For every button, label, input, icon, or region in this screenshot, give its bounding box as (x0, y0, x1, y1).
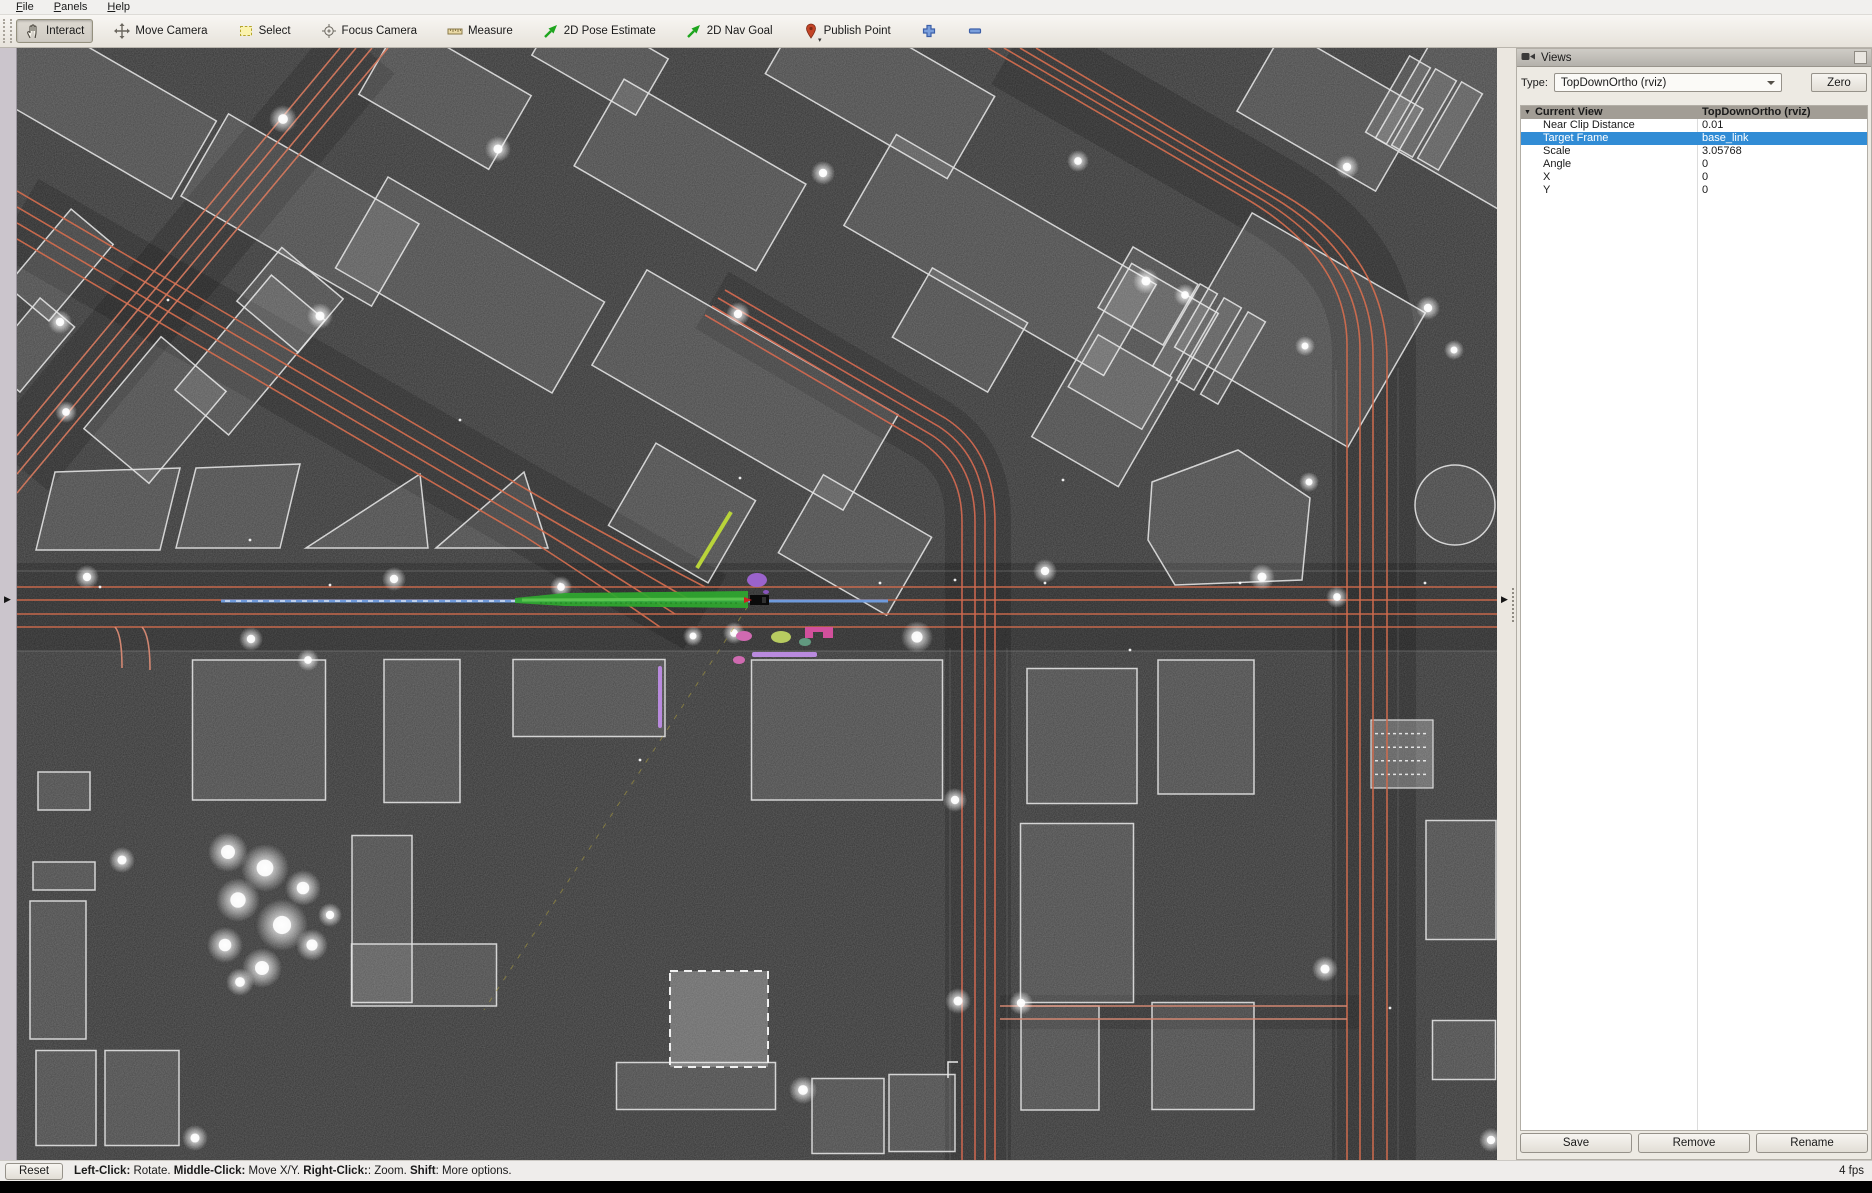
tree-core (734, 310, 742, 318)
view-properties-tree[interactable]: ▼Current ViewTopDownOrtho (rviz)Near Cli… (1520, 105, 1868, 1131)
building-outline (384, 660, 460, 803)
status-bar: Reset Left-Click: Rotate. Middle-Click: … (0, 1160, 1872, 1181)
tree-core (306, 939, 317, 950)
map-point (1424, 582, 1427, 585)
building-outline (176, 464, 300, 548)
tree-core (1451, 347, 1458, 354)
tree-core (190, 1133, 199, 1142)
tree-core (1041, 567, 1049, 575)
view-type-combobox[interactable]: TopDownOrtho (rviz) (1554, 73, 1782, 92)
tree-core (1487, 1136, 1495, 1144)
tree-core (951, 796, 959, 804)
tree-row-target-frame[interactable]: Target Framebase_link (1521, 132, 1867, 145)
toolbar-focus-camera-button[interactable]: Focus Camera (312, 19, 426, 43)
tree-core (247, 635, 255, 643)
property-value[interactable]: 3.05768 (1697, 145, 1867, 158)
property-label: X (1543, 171, 1550, 183)
tree-core (1141, 276, 1150, 285)
menu-panels-rest: anels (61, 1, 87, 13)
toolbar-label: Move Camera (135, 25, 207, 37)
toolbar-measure-button[interactable]: Measure (438, 19, 522, 43)
tree-core (557, 583, 565, 591)
tree-core (235, 977, 245, 987)
tree-core (219, 939, 232, 952)
property-label: Angle (1543, 158, 1571, 170)
left-panel-strip: ▶ (0, 48, 17, 1160)
building-outline (1027, 669, 1137, 804)
zero-button[interactable]: Zero (1811, 73, 1867, 92)
type-label: Type: (1521, 77, 1548, 89)
3d-viewport[interactable] (17, 48, 1497, 1160)
building-outline (752, 660, 943, 800)
toolbar-label: Measure (468, 25, 513, 37)
nav-goal-icon (686, 23, 702, 39)
ego-vehicle (750, 595, 769, 605)
tree-core (1306, 479, 1313, 486)
panel-float-button[interactable] (1854, 51, 1867, 64)
map-point (639, 759, 642, 762)
toolbar-2d-pose-estimate-button[interactable]: 2D Pose Estimate (534, 19, 665, 43)
property-label: Y (1543, 184, 1550, 196)
property-value[interactable]: 0 (1697, 158, 1867, 171)
menu-help-rest: elp (115, 1, 130, 13)
save-button[interactable]: Save (1520, 1133, 1632, 1153)
tree-core (911, 631, 922, 642)
tree-core (953, 996, 962, 1005)
property-value[interactable]: 0 (1697, 184, 1867, 197)
tree-core (1074, 157, 1082, 165)
toolbar-label: Select (259, 25, 291, 37)
toolbar-label: Focus Camera (342, 25, 417, 37)
building-outline (105, 1051, 179, 1146)
views-panel-title: Views (1541, 52, 1571, 64)
building-outline (1426, 821, 1496, 940)
tree-core (315, 311, 324, 320)
tree-core (297, 882, 310, 895)
tree-core (62, 408, 70, 416)
tree-core (326, 911, 334, 919)
building-outline (193, 660, 326, 800)
map-point (1239, 582, 1242, 585)
tree-core (1302, 343, 1309, 350)
detection-lime (771, 631, 791, 643)
map-point (954, 579, 957, 582)
building-outline (1021, 1006, 1099, 1110)
fps-counter: 4 fps (1839, 1165, 1867, 1177)
tree-core (1257, 572, 1266, 581)
expand-right-panel-arrow[interactable]: ▶ (1501, 594, 1508, 605)
menu-file[interactable]: File (6, 0, 44, 15)
menu-file-rest: ile (23, 1, 34, 13)
select-icon (238, 23, 254, 39)
map-point (1389, 1007, 1392, 1010)
tree-core (278, 114, 288, 124)
building-outline (38, 772, 90, 810)
menu-file-accel: F (16, 1, 23, 13)
tree-core (1017, 999, 1025, 1007)
view-type-value: TopDownOrtho (rviz) (1561, 77, 1666, 89)
tree-core (690, 633, 697, 640)
tree-core (255, 961, 269, 975)
tree-core (798, 1085, 808, 1095)
chevron-down-icon (1767, 81, 1775, 89)
building-outline (33, 862, 95, 890)
building-outline (36, 468, 180, 550)
tree-core (493, 144, 502, 153)
detection-pink-2 (733, 656, 745, 664)
tree-core (56, 318, 64, 326)
building-outline (1158, 660, 1254, 794)
tree-core (230, 892, 245, 907)
map-point (99, 586, 102, 589)
toolbar-overflow-caret[interactable]: ▾ (818, 36, 822, 44)
view-type-row: Type: TopDownOrtho (rviz) Zero (1521, 72, 1867, 93)
right-panel-strip: ▶ (1497, 48, 1516, 1160)
property-value[interactable]: base_link (1697, 132, 1867, 145)
tree-core (1343, 163, 1351, 171)
menu-panels[interactable]: Panels (44, 0, 98, 15)
toolbar-interact-button[interactable]: Interact (16, 19, 93, 43)
toolbar-minus-icon-button[interactable] (958, 19, 992, 43)
tree-core (273, 916, 291, 934)
property-value[interactable]: 0 (1697, 171, 1867, 184)
remove-button[interactable]: Remove (1638, 1133, 1750, 1153)
bottom-black-bar (0, 1181, 1872, 1193)
map-point (459, 419, 462, 422)
toolbar-2d-nav-goal-button[interactable]: 2D Nav Goal (677, 19, 782, 43)
building-outline (889, 1075, 955, 1152)
camera-icon (1521, 51, 1536, 65)
plus-icon (921, 23, 937, 39)
tree-row-scale[interactable]: Scale3.05768 (1521, 145, 1867, 158)
views-panel-titlebar[interactable]: Views (1517, 49, 1871, 67)
move-camera-icon (114, 23, 130, 39)
toolbar: InteractMove CameraSelectFocus CameraMea… (0, 15, 1872, 48)
tree-core (304, 656, 312, 664)
property-label: Scale (1543, 145, 1571, 157)
tree-core (1333, 593, 1341, 601)
toolbar-drag-handle[interactable] (3, 19, 12, 43)
tree-column-divider[interactable] (1697, 106, 1698, 1130)
map-point (739, 477, 742, 480)
building-outline (36, 1051, 96, 1146)
tree-core (221, 845, 235, 859)
tree-row-current-view[interactable]: ▼Current ViewTopDownOrtho (rviz) (1521, 106, 1867, 119)
expander-icon[interactable]: ▼ (1524, 109, 1531, 116)
tree-core (1424, 304, 1432, 312)
tree-core (257, 860, 274, 877)
trajectory-core (522, 599, 745, 600)
views-panel-buttons: Save Remove Rename (1520, 1133, 1868, 1153)
minus-icon (967, 23, 983, 39)
map-point (167, 299, 170, 302)
tree-core (390, 575, 398, 583)
toolbar-select-button[interactable]: Select (229, 19, 300, 43)
building-outline (352, 944, 497, 1006)
tree-row-x[interactable]: X0 (1521, 171, 1867, 184)
property-value[interactable]: 0.01 (1697, 119, 1867, 132)
measure-icon (447, 23, 463, 39)
toolbar-move-camera-button[interactable]: Move Camera (105, 19, 216, 43)
hand-icon (25, 23, 41, 39)
lane-marker-purple-h (752, 652, 817, 657)
expand-left-panel-arrow[interactable]: ▶ (4, 594, 11, 605)
building-dashed (670, 971, 768, 1067)
toolbar-label: 2D Pose Estimate (564, 25, 656, 37)
building-outline (1021, 824, 1134, 1003)
building-outline (617, 1063, 776, 1110)
building-outline (1433, 1021, 1496, 1080)
map-render (17, 48, 1497, 1160)
mouse-help-text: Left-Click: Rotate. Middle-Click: Move X… (74, 1165, 512, 1177)
ego-dot-purple (763, 590, 769, 594)
reset-button[interactable]: Reset (5, 1163, 63, 1180)
tree-row-y[interactable]: Y0 (1521, 184, 1867, 197)
property-label: Target Frame (1543, 132, 1608, 144)
lane-marker-purple-v (658, 666, 662, 728)
tree-core (1320, 964, 1329, 973)
tree-core (117, 855, 126, 864)
toolbar-plus-icon-button[interactable] (912, 19, 946, 43)
property-label: Near Clip Distance (1543, 119, 1635, 131)
detection-purple (747, 573, 767, 587)
detection-teal (799, 638, 811, 646)
map-point (249, 539, 252, 542)
building-outline (30, 901, 86, 1039)
detection-pink-1 (736, 631, 752, 641)
property-value[interactable]: TopDownOrtho (rviz) (1697, 106, 1867, 119)
map-point (1062, 479, 1065, 482)
building-outline (513, 660, 665, 737)
focus-camera-icon (321, 23, 337, 39)
pose-estimate-icon (543, 23, 559, 39)
map-point (879, 582, 882, 585)
menu-help[interactable]: Help (97, 0, 140, 15)
tree-row-near-clip-distance[interactable]: Near Clip Distance0.01 (1521, 119, 1867, 132)
panel-splitter-handle[interactable] (1512, 588, 1514, 622)
tree-row-angle[interactable]: Angle0 (1521, 158, 1867, 171)
menu-bar: File Panels Help (0, 0, 1872, 15)
tree-core (1181, 291, 1189, 299)
views-panel: Views Type: TopDownOrtho (rviz) Zero ▼Cu… (1516, 48, 1872, 1160)
tree-core (819, 169, 827, 177)
building-parking (1371, 720, 1433, 788)
ego-detail (762, 597, 766, 603)
map-point (1129, 649, 1132, 652)
menu-panels-accel: P (54, 1, 61, 13)
property-label: Current View (1535, 106, 1603, 118)
rename-button[interactable]: Rename (1756, 1133, 1868, 1153)
building-outline (812, 1079, 884, 1154)
toolbar-label: 2D Nav Goal (707, 25, 773, 37)
publish-point-icon (803, 23, 819, 39)
map-point (329, 584, 332, 587)
toolbar-label: Interact (46, 25, 84, 37)
building-circle (1415, 465, 1495, 545)
tree-core (83, 573, 91, 581)
toolbar-label: Publish Point (824, 25, 891, 37)
toolbar-publish-point-button[interactable]: Publish Point (794, 19, 900, 43)
